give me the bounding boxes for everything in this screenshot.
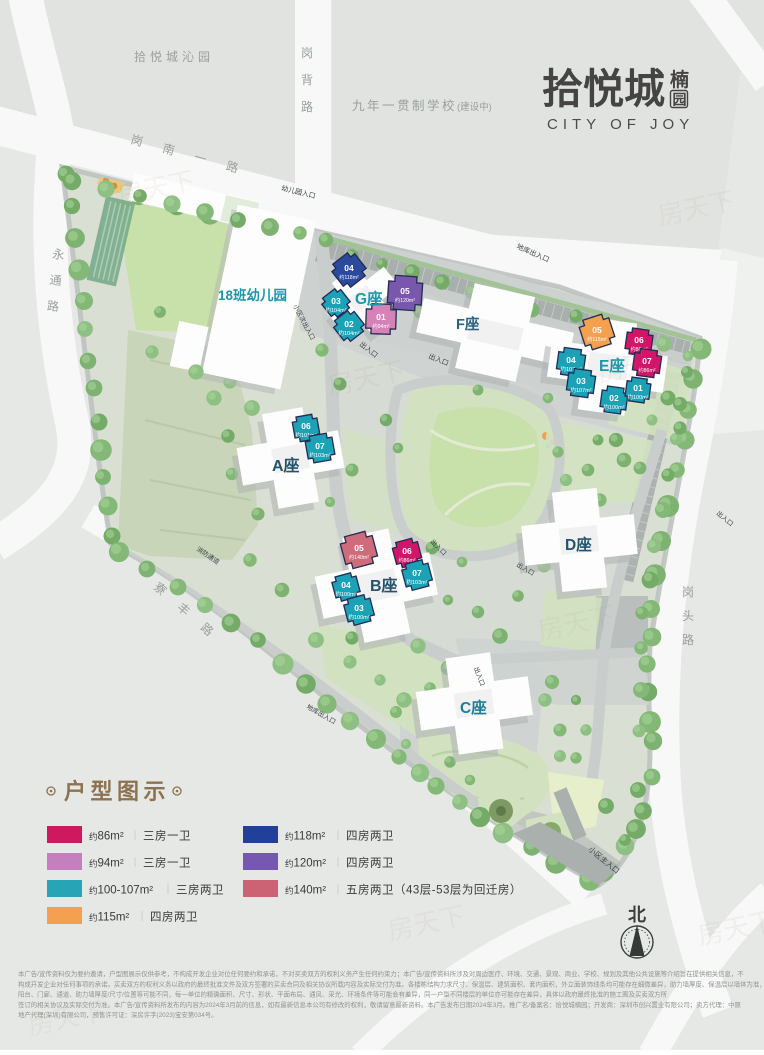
- svg-text:三房一卫: 三房一卫: [143, 830, 191, 843]
- svg-text:约100m²: 约100m²: [335, 590, 356, 598]
- svg-text:约115m²: 约115m²: [587, 335, 607, 343]
- svg-text:北: 北: [628, 905, 646, 925]
- svg-text:约100m²: 约100m²: [348, 613, 369, 621]
- svg-text:约100m²: 约100m²: [603, 403, 624, 411]
- svg-text:｜: ｜: [130, 857, 140, 869]
- svg-text:86m²: 86m²: [98, 831, 124, 843]
- svg-text:04: 04: [341, 580, 351, 590]
- svg-text:120m²: 120m²: [294, 858, 327, 870]
- svg-text:构成开发企业对任何事项的承诺。买卖双方的权利义务以政府的最终: 构成开发企业对任何事项的承诺。买卖双方的权利义务以政府的最终批准文件及双方签署的…: [18, 979, 764, 988]
- svg-text:岗背路: 岗背路: [301, 46, 313, 114]
- svg-text:06: 06: [402, 546, 412, 556]
- svg-text:｜: ｜: [137, 911, 147, 923]
- svg-text:115m²: 115m²: [98, 912, 130, 924]
- svg-text:约103m²: 约103m²: [406, 578, 427, 586]
- svg-text:｜: ｜: [333, 884, 343, 896]
- svg-text:18班幼儿园: 18班幼儿园: [218, 287, 287, 303]
- svg-text:五房两卫（43层-53层为回迁房）: 五房两卫（43层-53层为回迁房）: [346, 884, 522, 897]
- svg-text:03: 03: [331, 296, 341, 306]
- svg-text:｜: ｜: [163, 884, 173, 896]
- svg-text:约: 约: [285, 859, 294, 869]
- svg-text:四房两卫: 四房两卫: [346, 857, 394, 870]
- svg-text:B座: B座: [370, 576, 398, 595]
- svg-text:约100m²: 约100m²: [627, 393, 648, 401]
- svg-text:约103m²: 约103m²: [309, 451, 330, 459]
- svg-text:约: 约: [89, 913, 98, 923]
- svg-text:｜: ｜: [130, 830, 140, 842]
- svg-text:02: 02: [609, 393, 619, 403]
- svg-text:07: 07: [315, 441, 325, 451]
- svg-text:拾悦城沁园: 拾悦城沁园: [134, 49, 214, 64]
- svg-text:05: 05: [354, 543, 364, 553]
- svg-text:约107m²: 约107m²: [570, 386, 591, 394]
- svg-text:05: 05: [400, 286, 410, 296]
- svg-text:户型图示: 户型图示: [64, 779, 170, 804]
- svg-text:约: 约: [89, 832, 98, 842]
- svg-text:CITY OF JOY: CITY OF JOY: [547, 116, 694, 133]
- svg-text:楠: 楠: [669, 68, 689, 91]
- svg-text:四房两卫: 四房两卫: [150, 911, 198, 924]
- svg-text:G座: G座: [355, 289, 383, 308]
- svg-text:04: 04: [344, 263, 354, 273]
- svg-text:约118m²: 约118m²: [339, 273, 359, 281]
- svg-text:｜: ｜: [333, 857, 343, 869]
- svg-text:06: 06: [301, 421, 311, 431]
- svg-text:约120m²: 约120m²: [395, 296, 415, 304]
- svg-text:｜: ｜: [333, 830, 343, 842]
- svg-text:签订的相关协议及实际交付为准。本广告/宣传资料所发布的内容为: 签订的相关协议及实际交付为准。本广告/宣传资料所发布的内容为2024年3月前的信…: [18, 1000, 741, 1009]
- svg-text:01: 01: [376, 312, 386, 322]
- svg-text:A座: A座: [272, 456, 300, 475]
- svg-text:约104m²: 约104m²: [338, 329, 359, 337]
- svg-text:03: 03: [354, 603, 364, 613]
- svg-text:D座: D座: [565, 535, 592, 554]
- svg-text:F座: F座: [456, 315, 480, 333]
- svg-text:约: 约: [89, 886, 98, 896]
- svg-text:01: 01: [633, 383, 643, 393]
- svg-text:05: 05: [592, 325, 602, 335]
- svg-text:约94m²: 约94m²: [372, 322, 389, 330]
- svg-text:03: 03: [576, 376, 586, 386]
- svg-text:C座: C座: [460, 698, 487, 717]
- svg-text:约104m²: 约104m²: [325, 306, 346, 314]
- svg-text:三房一卫: 三房一卫: [143, 857, 191, 870]
- svg-text:约: 约: [285, 886, 294, 896]
- svg-text:07: 07: [412, 568, 422, 578]
- svg-text:94m²: 94m²: [98, 858, 124, 870]
- svg-text:约140m²: 约140m²: [349, 553, 369, 561]
- svg-text:140m²: 140m²: [294, 885, 327, 897]
- svg-text:岗头路: 岗头路: [682, 585, 694, 647]
- svg-text:约: 约: [89, 859, 98, 869]
- svg-text:阳台、门廊、通道、助力墙厚度/尺寸/位置等可能不同，每一单位: 阳台、门廊、通道、助力墙厚度/尺寸/位置等可能不同，每一单位的精确面积、尺寸、形…: [18, 990, 668, 999]
- svg-text:四房两卫: 四房两卫: [346, 830, 394, 843]
- svg-text:园: 园: [673, 92, 687, 108]
- svg-text:02: 02: [344, 319, 354, 329]
- svg-text:本广告/宣传资料仅为要约邀请，户型图展示仅供参考，不构成开发: 本广告/宣传资料仅为要约邀请，户型图展示仅供参考，不构成开发企业对位任何要约和承…: [18, 969, 744, 978]
- svg-text:06: 06: [634, 335, 644, 345]
- svg-text:拾悦城: 拾悦城: [542, 66, 665, 112]
- svg-text:118m²: 118m²: [294, 831, 326, 843]
- svg-text:约: 约: [285, 832, 294, 842]
- svg-text:三房两卫: 三房两卫: [176, 884, 224, 897]
- svg-text:100-107m²: 100-107m²: [98, 885, 154, 897]
- svg-text:04: 04: [566, 355, 576, 365]
